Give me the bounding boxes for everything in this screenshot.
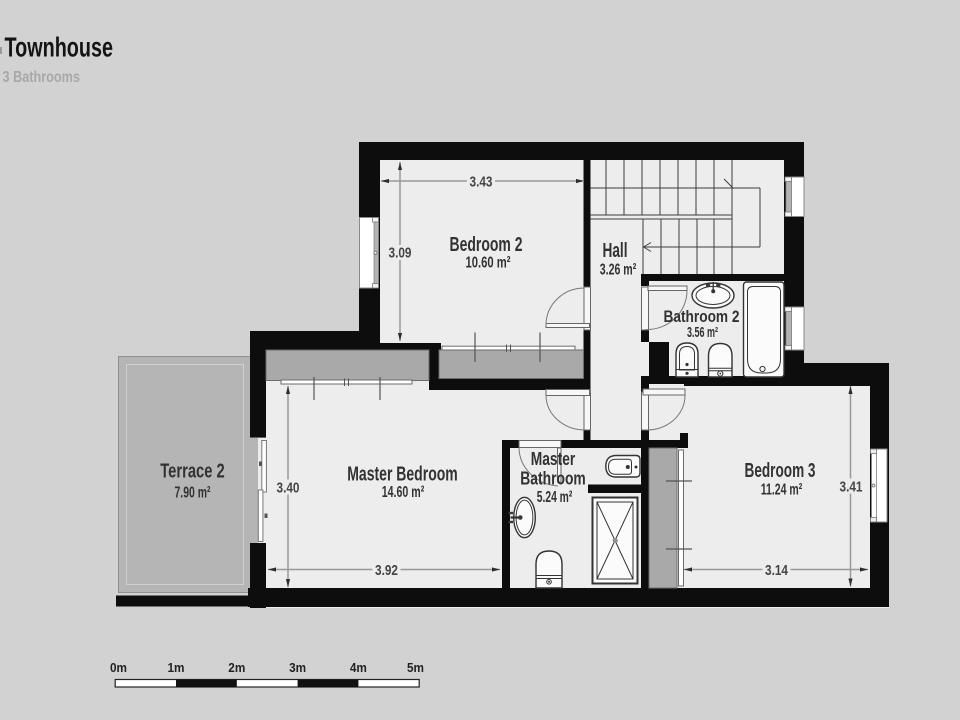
svg-text:3.14: 3.14 bbox=[765, 562, 789, 579]
svg-text:5m: 5m bbox=[407, 660, 424, 675]
svg-text:3.56 m²: 3.56 m² bbox=[687, 325, 718, 341]
svg-text:Bathroom 2: Bathroom 2 bbox=[664, 307, 740, 326]
svg-text:10.60 m²: 10.60 m² bbox=[466, 255, 511, 272]
svg-text:1m: 1m bbox=[168, 660, 185, 675]
svg-text:7.90 m²: 7.90 m² bbox=[175, 485, 211, 502]
svg-text:3.92: 3.92 bbox=[375, 562, 398, 579]
svg-text:Bedroom 2: Bedroom 2 bbox=[450, 234, 523, 256]
svg-text:3m: 3m bbox=[289, 660, 306, 675]
svg-text:3.26 m²: 3.26 m² bbox=[600, 262, 637, 279]
svg-text:3.40: 3.40 bbox=[277, 479, 300, 496]
svg-text:3.41: 3.41 bbox=[840, 478, 863, 495]
svg-text:Bathroom: Bathroom bbox=[520, 469, 586, 489]
svg-text:0m: 0m bbox=[110, 660, 127, 675]
svg-text:Hall: Hall bbox=[603, 240, 628, 262]
svg-text:Master Bedroom: Master Bedroom bbox=[347, 464, 458, 486]
svg-text:11.24 m²: 11.24 m² bbox=[761, 482, 803, 499]
svg-text:3.43: 3.43 bbox=[470, 173, 493, 190]
svg-text:5.24 m²: 5.24 m² bbox=[537, 489, 573, 506]
svg-text:2m: 2m bbox=[228, 660, 245, 675]
svg-text:Bedroom 3: Bedroom 3 bbox=[745, 460, 816, 482]
svg-text:Townhouse: Townhouse bbox=[5, 32, 114, 63]
svg-text:3 Bathrooms: 3 Bathrooms bbox=[3, 69, 81, 86]
svg-text:14.60 m²: 14.60 m² bbox=[382, 484, 425, 501]
svg-text:3.09: 3.09 bbox=[389, 244, 412, 261]
svg-text:4m: 4m bbox=[350, 660, 367, 675]
svg-text:Master: Master bbox=[531, 449, 576, 469]
svg-text:Terrace 2: Terrace 2 bbox=[160, 461, 225, 483]
